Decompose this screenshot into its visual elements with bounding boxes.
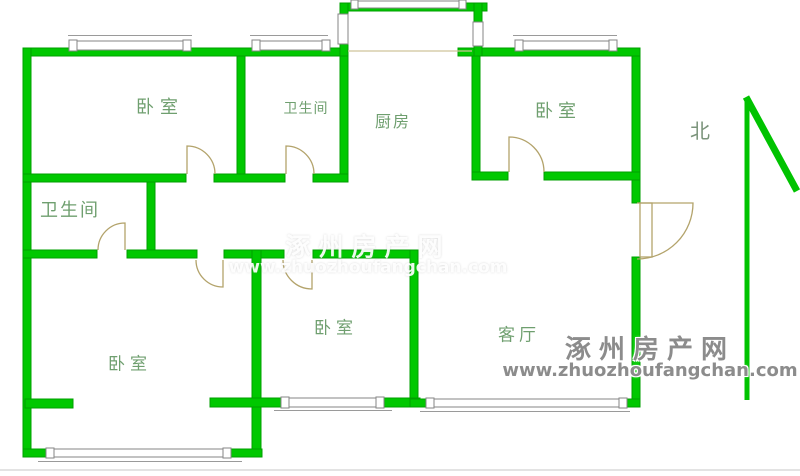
wall-right-exterior-lower — [632, 257, 640, 407]
window-cap — [376, 397, 384, 408]
window-cap — [619, 398, 627, 408]
room-label-bedroom-top-left: 卧室 — [136, 99, 184, 117]
wall-bedroomTL-bathroom-divider — [237, 56, 245, 182]
door-bedroomBL — [196, 260, 223, 287]
wall-kitchen-left — [340, 56, 348, 182]
north-arrow-barb — [746, 97, 797, 191]
window-cap — [46, 448, 54, 458]
page-bottom-divider — [0, 469, 800, 471]
wall-bedroomTR-bottom-right — [544, 172, 640, 180]
window-cap — [426, 398, 434, 408]
wall-kitchen-right — [472, 56, 480, 180]
walls-group — [23, 3, 640, 457]
window-sill-line — [420, 411, 630, 412]
window-bedroomTL — [73, 41, 187, 50]
watermark-faint-site-url: www.zhuozhoufangchan.com — [229, 260, 508, 277]
window-cap — [252, 40, 260, 51]
door-entrance-threshold — [640, 203, 652, 257]
window-sill-line — [513, 35, 617, 36]
watermark-site-url: www.zhuozhoufangchan.com — [502, 362, 797, 380]
room-label-bedroom-middle: 卧室 — [314, 321, 358, 338]
window-sill-line — [68, 35, 192, 36]
door-bathroomL — [98, 223, 125, 250]
window-cap — [281, 397, 289, 408]
wall-bedroomBL-closet-stub — [25, 399, 73, 408]
room-label-living-room: 客厅 — [498, 328, 540, 345]
floorplan-canvas: 卧室 卫生间 厨房 卧室 卫生间 卧室 卧室 客厅 北 涿州房产网 www.zh… — [0, 0, 800, 476]
window-balcony-top — [354, 1, 462, 8]
window-bedroomTR — [519, 41, 613, 50]
north-arrow — [746, 97, 797, 400]
window-living — [430, 399, 623, 407]
window-sill-line — [250, 35, 328, 36]
north-label: 北 — [690, 121, 710, 141]
room-label-kitchen: 厨房 — [375, 114, 411, 130]
door-bedroomTL — [187, 146, 215, 174]
window-bathroomTop — [256, 41, 326, 50]
wall-hall-upper-c — [313, 174, 348, 182]
window-cap — [223, 448, 231, 458]
door-entrance — [637, 203, 693, 259]
window-balcony-left-side — [338, 14, 348, 44]
door-bathroomTop — [286, 146, 314, 174]
window-cap — [351, 0, 358, 9]
wall-bathroomL-right — [147, 182, 155, 258]
window-bedroomBL — [50, 449, 227, 457]
wall-hall-upper-b — [214, 174, 285, 182]
window-bedroomMid — [285, 398, 380, 407]
window-sill-line — [38, 461, 242, 462]
window-cap — [515, 40, 523, 51]
wall-hall-lower-a — [23, 250, 97, 258]
window-cap — [322, 40, 330, 51]
wall-right-exterior-upper — [632, 56, 640, 203]
window-sill-line — [274, 410, 392, 411]
window-balcony-right-side — [473, 22, 483, 46]
room-label-bedroom-bottom-left: 卧室 — [108, 357, 152, 374]
window-cap — [183, 40, 191, 51]
room-label-bathroom-left: 卫生间 — [40, 202, 100, 220]
window-cap — [69, 40, 77, 51]
room-label-bathroom-top: 卫生间 — [284, 102, 329, 116]
wall-bedroomTR-bottom-left — [472, 172, 508, 180]
wall-bedroomBL-mid-divider — [252, 250, 261, 457]
window-cap — [609, 40, 617, 51]
wall-hall-upper-a — [23, 174, 186, 182]
door-bedroomTR — [509, 137, 544, 172]
room-label-bedroom-top-right: 卧室 — [535, 103, 581, 121]
wall-hall-lower-b — [127, 250, 197, 258]
watermark-faint-site-name: 涿州房产网 — [285, 235, 450, 260]
window-cap — [459, 0, 466, 9]
windows-group — [38, 0, 630, 462]
